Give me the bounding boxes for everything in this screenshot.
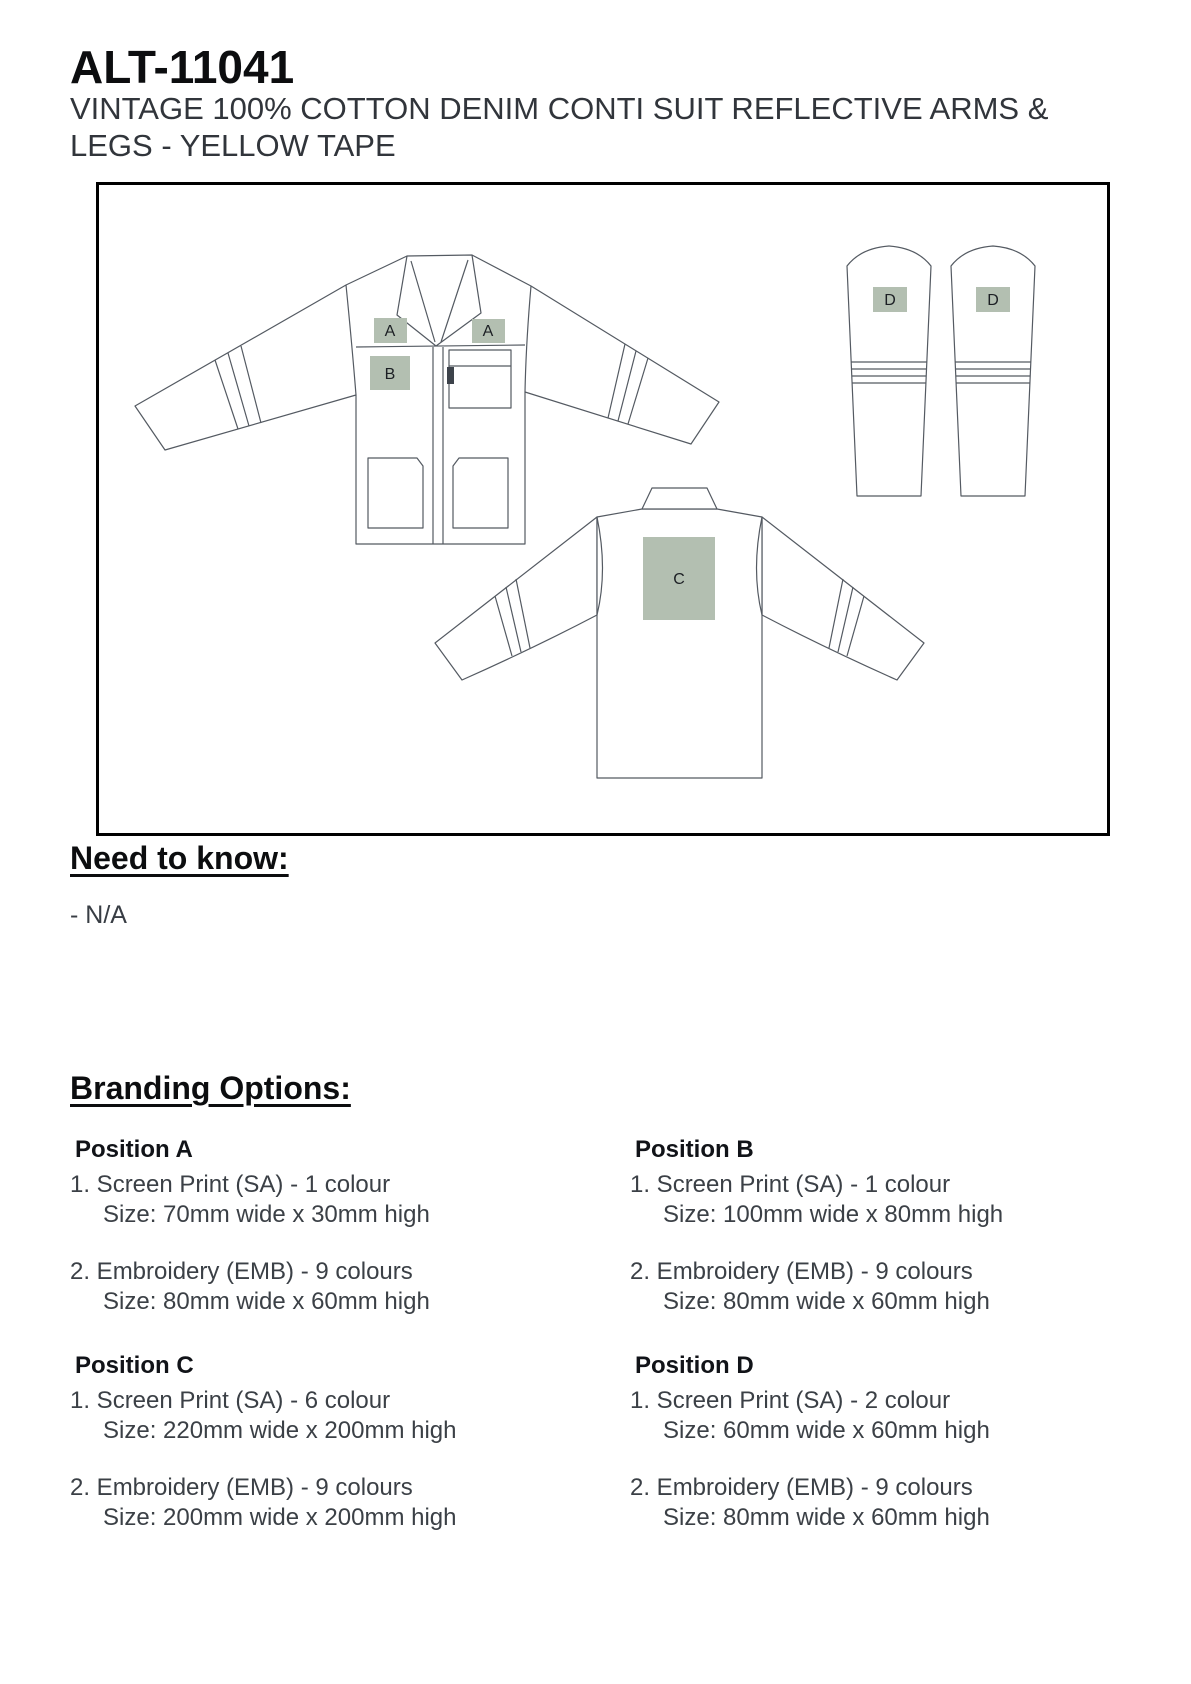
position-a-block: Position A 1. Screen Print (SA) - 1 colo… (70, 1135, 590, 1317)
jacket-front-drawing: A A B (135, 255, 719, 544)
option-size: Size: 80mm wide x 60mm high (663, 1287, 1150, 1317)
position-b-title: Position B (635, 1135, 1150, 1165)
trouser-leg-right (951, 246, 1035, 496)
marker-d-right-label: D (987, 292, 999, 309)
option-size: Size: 200mm wide x 200mm high (103, 1503, 590, 1533)
position-c-title: Position C (75, 1351, 590, 1381)
option-label: 2. Embroidery (EMB) - 9 colours (663, 1473, 1150, 1503)
trouser-leg-left (847, 246, 931, 496)
marker-a-right-label: A (483, 323, 494, 340)
position-c-block: Position C 1. Screen Print (SA) - 6 colo… (70, 1351, 590, 1533)
option-label: 2. Embroidery (EMB) - 9 colours (663, 1257, 1150, 1287)
option-size: Size: 220mm wide x 200mm high (103, 1416, 590, 1446)
spec-sheet-page: ALT-11041 VINTAGE 100% COTTON DENIM CONT… (0, 0, 1191, 1684)
option-size: Size: 60mm wide x 60mm high (663, 1416, 1150, 1446)
jacket-back-collar (642, 488, 717, 509)
need-to-know-heading: Need to know: (70, 840, 289, 877)
option-label: 1. Screen Print (SA) - 1 colour (103, 1170, 590, 1200)
position-d-title: Position D (635, 1351, 1150, 1381)
marker-c-label: C (673, 571, 685, 588)
position-d-option-2: 2. Embroidery (EMB) - 9 colours Size: 80… (630, 1473, 1150, 1533)
need-to-know-item: - N/A (70, 901, 127, 930)
page-title: ALT-11041 (70, 40, 294, 94)
position-a-option-1: 1. Screen Print (SA) - 1 colour Size: 70… (70, 1170, 590, 1230)
position-c-option-2: 2. Embroidery (EMB) - 9 colours Size: 20… (70, 1473, 590, 1533)
product-description: VINTAGE 100% COTTON DENIM CONTI SUIT REF… (70, 90, 1118, 164)
option-size: Size: 100mm wide x 80mm high (663, 1200, 1150, 1230)
option-size: Size: 80mm wide x 60mm high (663, 1503, 1150, 1533)
garment-diagram-box: A A B D D (96, 182, 1110, 836)
option-size: Size: 70mm wide x 30mm high (103, 1200, 590, 1230)
marker-d-left-label: D (884, 292, 896, 309)
branding-options-heading: Branding Options: (70, 1070, 351, 1107)
option-label: 2. Embroidery (EMB) - 9 colours (103, 1473, 590, 1503)
option-label: 1. Screen Print (SA) - 2 colour (663, 1386, 1150, 1416)
option-size: Size: 80mm wide x 60mm high (103, 1287, 590, 1317)
marker-a-left-label: A (385, 323, 396, 340)
option-label: 2. Embroidery (EMB) - 9 colours (103, 1257, 590, 1287)
option-label: 1. Screen Print (SA) - 6 colour (103, 1386, 590, 1416)
position-b-block: Position B 1. Screen Print (SA) - 1 colo… (630, 1135, 1150, 1317)
position-b-option-1: 1. Screen Print (SA) - 1 colour Size: 10… (630, 1170, 1150, 1230)
position-b-option-2: 2. Embroidery (EMB) - 9 colours Size: 80… (630, 1257, 1150, 1317)
option-label: 1. Screen Print (SA) - 1 colour (663, 1170, 1150, 1200)
garment-diagram: A A B D D (99, 185, 1107, 833)
position-d-option-1: 1. Screen Print (SA) - 2 colour Size: 60… (630, 1386, 1150, 1446)
jacket-chest-pocket-zip (447, 367, 454, 384)
jacket-front-silhouette (135, 255, 719, 544)
trouser-legs-drawing: D D (847, 246, 1035, 496)
position-c-option-1: 1. Screen Print (SA) - 6 colour Size: 22… (70, 1386, 590, 1446)
position-d-block: Position D 1. Screen Print (SA) - 2 colo… (630, 1351, 1150, 1533)
position-a-title: Position A (75, 1135, 590, 1165)
position-a-option-2: 2. Embroidery (EMB) - 9 colours Size: 80… (70, 1257, 590, 1317)
jacket-back-right-sleeve (762, 517, 924, 680)
marker-b-label: B (385, 366, 396, 383)
